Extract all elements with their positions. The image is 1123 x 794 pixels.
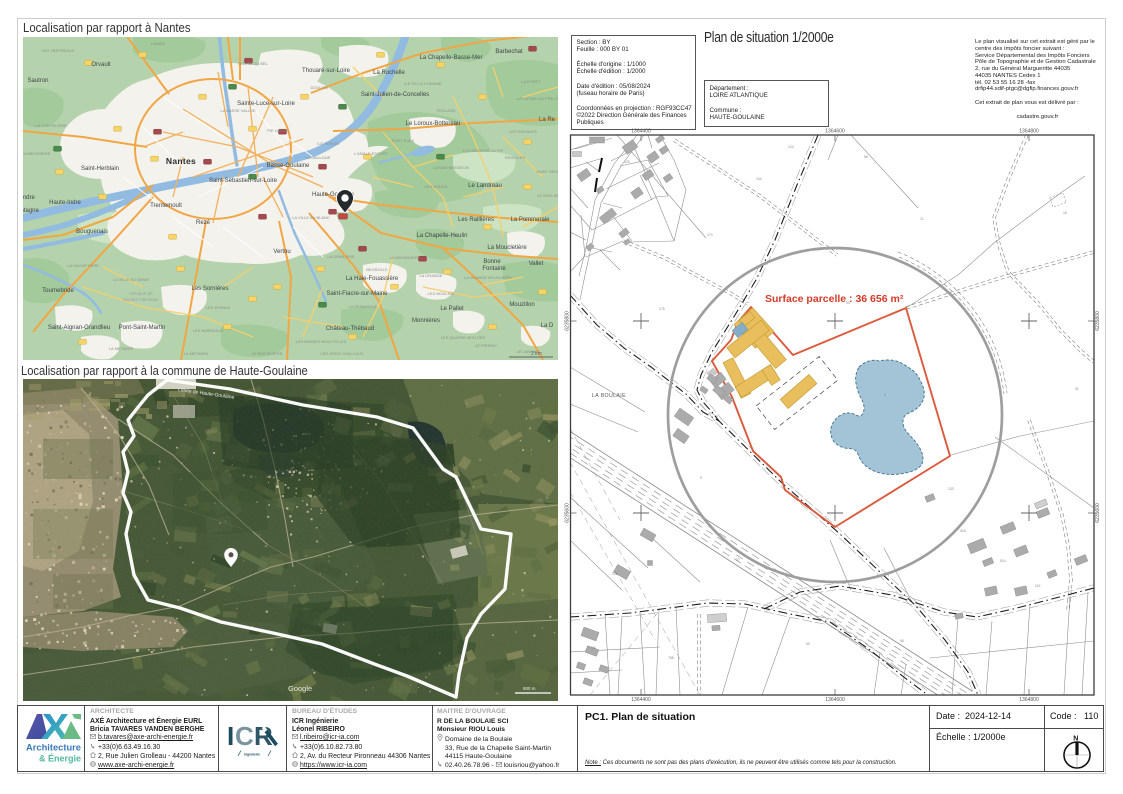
svg-text:Thouaré-sur-Loire: Thouaré-sur-Loire [302,68,351,74]
svg-text:LA CONTELIERE: LA CONTELIERE [35,123,67,128]
svg-text:Bonne: Bonne [483,259,501,265]
svg-text:Vallet: Vallet [529,261,544,267]
svg-text:DOULON: DOULON [310,85,327,90]
svg-text:La Chapelle-Basse-Mer: La Chapelle-Basse-Mer [419,55,482,61]
svg-text:Saint-Aignan-Grandlieu: Saint-Aignan-Grandlieu [48,325,110,331]
svg-text:LES GROS CHALLOUX: LES GROS CHALLOUX [320,351,363,356]
svg-text:LA NOE BREGEON: LA NOE BREGEON [433,165,469,170]
svg-text:1364800: 1364800 [1019,697,1039,702]
svg-text:Saint-Julien-de-Concelles: Saint-Julien-de-Concelles [361,92,429,98]
svg-text:Le Pallet: Le Pallet [440,306,464,312]
svg-text:LES MOULINS DU PE: LES MOULINS DU PE [463,148,504,153]
svg-text:LA GACHETIERE: LA GACHETIERE [67,263,99,268]
svg-text:Bouguenais: Bouguenais [76,229,108,235]
svg-text:PIE HAVON: PIE HAVON [267,128,289,133]
svg-text:LA GRANGE: LA GRANGE [419,273,442,278]
svg-text:123: 123 [788,145,794,149]
svg-text:Orvault: Orvault [91,62,111,68]
svg-text:LA BATARDIERE: LA BATARDIERE [390,255,421,260]
svg-text:L'ANGLE ESSORT: L'ANGLE ESSORT [354,151,389,156]
svg-text:La Haie-Fouassière: La Haie-Fouassière [346,276,399,282]
svg-text:1364800: 1364800 [1019,129,1039,135]
svg-text:2 km: 2 km [531,351,542,357]
svg-text:500 m: 500 m [523,686,536,691]
svg-text:BEGROLLE: BEGROLLE [366,267,388,272]
svg-text:Château-Thébaud: Château-Thébaud [326,326,374,332]
svg-text:LE PAS RIVIERE: LE PAS RIVIERE [252,351,283,356]
svg-text:ILE HERON: ILE HERON [317,141,339,146]
svg-text:Trentemoult: Trentemoult [150,203,182,209]
svg-text:Google: Google [288,684,312,693]
svg-text:LES BARREAUX: LES BARREAUX [193,328,224,333]
svg-text:LES BASSES BOUTTILLES: LES BASSES BOUTTILLES [296,339,347,344]
svg-text:1364600: 1364600 [825,697,845,702]
svg-text:Pont-Saint-Martin: Pont-Saint-Martin [119,325,166,331]
svg-text:LA FORET: LA FORET [521,79,541,84]
svg-text:LA BASSE VALLEE: LA BASSE VALLEE [220,108,255,113]
svg-text:Architecture: Architecture [26,743,81,754]
svg-text:758: 758 [668,656,674,660]
svg-text:4: 4 [884,393,886,397]
svg-text:Rezé: Rezé [196,220,211,226]
svg-text:Vertou: Vertou [273,249,290,255]
svg-text:ROUTE DU BEL: ROUTE DU BEL [238,61,268,66]
svg-text:LA PENNERAIE: LA PENNERAIE [349,304,378,309]
svg-text:50: 50 [806,642,810,646]
svg-text:LA METAIRIE: LA METAIRIE [109,346,134,351]
svg-text:LES MOULINS: LES MOULINS [428,291,455,296]
svg-text:Les Raillières: Les Raillières [458,217,494,223]
svg-text:96: 96 [900,639,904,643]
svg-text:Nantes: Nantes [166,156,196,166]
svg-text:FORT EOLE: FORT EOLE [392,138,415,143]
svg-text:LES TERTREAUX: LES TERTREAUX [42,48,75,53]
svg-text:LA GATINE DU PRE CLOS: LA GATINE DU PRE CLOS [517,96,558,101]
svg-text:La Rochelle: La Rochelle [373,70,405,76]
svg-text:LA SAULZAIE: LA SAULZAIE [305,155,330,160]
svg-text:LA VILLE AU DENIS: LA VILLE AU DENIS [113,277,150,282]
svg-text:746: 746 [590,646,596,650]
svg-text:Aéroport de: Aéroport de [129,291,153,296]
svg-text:Tournebride: Tournebride [42,288,74,294]
svg-text:Saint-Sébastien-sur-Loire: Saint-Sébastien-sur-Loire [209,178,278,184]
svg-text:Sainte-Luce-sur-Loire: Sainte-Luce-sur-Loire [237,101,295,107]
svg-text:LA BOULAIE: LA BOULAIE [592,393,626,399]
svg-text:Le Loroux-Bottereau: Le Loroux-Bottereau [406,121,461,127]
svg-text:125: 125 [624,160,630,164]
svg-text:I: I [227,721,234,751]
svg-text:LA DEMILIERE: LA DEMILIERE [327,254,355,259]
svg-text:Saint-Herblain: Saint-Herblain [81,166,119,172]
svg-text:La Chapelle-Heulin: La Chapelle-Heulin [416,233,467,239]
svg-text:104: 104 [756,177,762,181]
svg-text:ILE DE LA CHENAIE: ILE DE LA CHENAIE [404,81,442,86]
svg-text:ingénierie: ingénierie [244,753,260,757]
svg-text:LIANCE: LIANCE [151,41,166,46]
svg-text:LES EPINAIS: LES EPINAIS [206,305,231,310]
svg-text:119: 119 [1035,584,1041,588]
svg-text:Haute-Indre: Haute-Indre [49,200,81,206]
svg-text:Nantes Atlantique: Nantes Atlantique [123,297,159,302]
svg-text:31: 31 [1075,387,1079,391]
svg-text:11: 11 [920,217,924,221]
svg-text:a Montagne: a Montagne [23,208,40,214]
svg-text:37: 37 [736,558,740,562]
svg-text:Mouzillon: Mouzillon [509,302,534,308]
svg-text:Saint-Fiacre-sur-Maine: Saint-Fiacre-sur-Maine [326,291,388,297]
svg-text:LA VILLE AU BLANC: LA VILLE AU BLANC [292,215,330,220]
svg-text:C: C [235,721,254,751]
svg-text:6235600: 6235600 [1095,503,1101,523]
svg-text:LES QUATRE MOUTIES: LES QUATRE MOUTIES [441,335,486,340]
svg-text:6235800: 6235800 [1095,311,1101,331]
svg-text:Monnières: Monnières [412,318,440,324]
svg-text:6235800: 6235800 [565,311,571,331]
svg-text:128: 128 [612,572,618,576]
svg-text:La Pommeraie: La Pommeraie [510,217,550,223]
svg-text:9: 9 [700,476,702,480]
svg-text:1364600: 1364600 [825,129,845,135]
svg-text:La Moucletière: La Moucletière [487,245,527,251]
svg-text:133: 133 [948,487,954,491]
svg-text:SAINT REM: SAINT REM [536,169,558,174]
svg-text:6235600: 6235600 [565,503,571,523]
svg-text:514: 514 [1000,559,1006,563]
svg-text:LES NOUES: LES NOUES [425,184,448,189]
svg-text:& Énergie: & Énergie [39,753,81,765]
svg-text:LA GRANGE BOUCHERIE: LA GRANGE BOUCHERIE [464,275,512,280]
svg-text:Surface parcelle : 36 656 m²: Surface parcelle : 36 656 m² [765,293,904,305]
svg-text:56: 56 [864,155,868,159]
svg-text:La Re: La Re [539,117,556,123]
svg-text:Fontaine: Fontaine [482,266,506,272]
svg-text:LE BOIS BENOIT: LE BOIS BENOIT [537,193,558,198]
svg-text:318: 318 [960,529,966,533]
svg-text:FROLAND: FROLAND [436,108,455,113]
svg-text:LES REGALES: LES REGALES [509,129,537,134]
svg-text:LA METAIRIE: LA METAIRIE [184,351,209,356]
svg-text:Sautron: Sautron [27,78,48,84]
svg-text:LA CHABOSSIERE: LA CHABOSSIERE [23,151,51,156]
svg-text:RINSOLES: RINSOLES [505,155,526,160]
svg-text:Barbechat: Barbechat [495,49,523,55]
svg-text:Indre: Indre [23,195,35,201]
svg-text:LE PERRAY: LE PERRAY [475,343,497,348]
svg-text:Basse-Goulaine: Basse-Goulaine [267,163,310,169]
svg-text:174: 174 [707,233,713,237]
svg-text:Le Landreau: Le Landreau [468,183,502,189]
svg-text:175: 175 [659,307,665,311]
svg-text:1364400: 1364400 [631,697,651,702]
svg-text:La D: La D [541,323,554,329]
svg-text:18: 18 [1063,211,1067,215]
svg-text:Les Sornières: Les Sornières [191,286,228,292]
